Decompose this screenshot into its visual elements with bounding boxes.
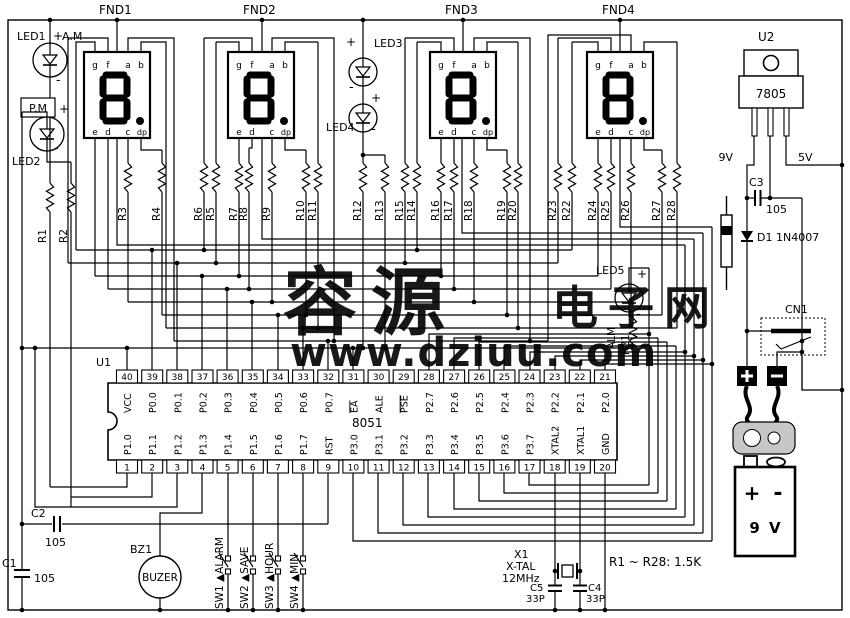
resistor-ref: R16 — [430, 200, 442, 221]
led-led1 — [33, 43, 67, 77]
battery-wire — [774, 386, 779, 425]
junction-dot — [800, 339, 805, 344]
seg-letter: e — [236, 128, 242, 138]
p3-u — [529, 473, 649, 485]
segment-wire — [558, 38, 611, 52]
wire — [786, 136, 842, 165]
seg-letter: d — [451, 128, 457, 138]
resistor-R27 — [658, 163, 665, 192]
seg-letter: e — [595, 128, 601, 138]
seg-letter: a — [628, 61, 634, 71]
resistor-R14 — [413, 163, 420, 192]
resistor-R24 — [594, 163, 601, 192]
pin-label: P0.6 — [299, 392, 310, 413]
segment-wire — [405, 38, 454, 52]
resistor-ref: R17 — [443, 200, 455, 221]
pin-label: ALE — [375, 395, 386, 413]
pin-number: 31 — [348, 373, 359, 383]
pin-label: VCC — [123, 393, 134, 413]
pin-label: P2.0 — [601, 392, 612, 413]
resistor-note: R1 ~ R28: 1.5K — [609, 555, 702, 569]
junction-dot — [332, 339, 337, 344]
pin-label: P0.0 — [148, 392, 159, 413]
resistor-ref: R28 — [666, 200, 678, 221]
wire — [71, 473, 152, 497]
junction-dot — [214, 261, 219, 266]
p3-u — [428, 473, 685, 517]
junction-dot — [603, 608, 608, 613]
switch-contact — [276, 569, 281, 574]
junction-dot — [553, 608, 558, 613]
schematic-canvas: 容源电子网www.dziuu.comFND1gfabedcdpFND2gfabe… — [0, 0, 850, 618]
seg-letter: d — [105, 128, 111, 138]
segment-wire — [285, 42, 318, 52]
led-ref: LED5 — [596, 264, 625, 277]
rail-5v-label: 5V — [798, 151, 813, 164]
pin-number: 14 — [448, 464, 460, 474]
cap-value: 105 — [45, 536, 66, 549]
pin-label: XTAL1 — [576, 426, 587, 455]
diode-package — [721, 196, 732, 290]
display-fnd2: FND2gfabedcdp — [228, 3, 294, 138]
pin-label: P1.2 — [173, 434, 184, 455]
pin-number: 18 — [549, 464, 561, 474]
seg-letter: e — [438, 128, 444, 138]
wire — [802, 198, 842, 390]
watermark-url: www.dziuu.com — [290, 330, 657, 376]
pin-label: P2.7 — [425, 392, 436, 413]
pin-label: P2.6 — [450, 392, 461, 413]
resistor-R17 — [450, 163, 457, 192]
switch-contact — [301, 569, 306, 574]
resistor-R4 — [158, 163, 165, 192]
pin-number: 8 — [300, 464, 306, 474]
jack-contact — [776, 344, 781, 349]
junction-dot — [701, 358, 706, 363]
wire — [160, 473, 202, 556]
junction-dot — [578, 608, 583, 613]
seg-letter: c — [629, 128, 634, 138]
pin-label: P0.2 — [199, 392, 210, 413]
resistor-R11 — [314, 163, 321, 192]
cap-ref: C5 — [530, 583, 543, 594]
junction-dot — [745, 196, 750, 201]
junction-dot — [20, 522, 25, 527]
pin-label: P2.1 — [576, 392, 587, 413]
junction-dot — [175, 261, 180, 266]
seg-letter: g — [236, 61, 242, 71]
junction-dot — [150, 248, 155, 253]
junction-dot — [260, 18, 265, 23]
led-ref: LED2 — [12, 155, 41, 168]
segment-wire — [249, 138, 252, 148]
led-ref: LED4 — [326, 121, 355, 134]
display-ref: FND2 — [243, 3, 276, 17]
pin-label: P1.5 — [249, 434, 260, 455]
resistor-ref: R11 — [307, 200, 319, 221]
pin-label: P1.7 — [299, 434, 310, 455]
junction-dot — [692, 354, 697, 359]
segment-wire — [487, 138, 507, 150]
switch-contact — [301, 556, 306, 561]
junction-dot — [20, 608, 25, 613]
junction-dot — [48, 18, 53, 23]
seg-letter: a — [125, 61, 131, 71]
pin-number: 30 — [373, 373, 385, 383]
resistor-R1 — [46, 183, 53, 212]
pin-number: 27 — [448, 373, 459, 383]
resistor-R28 — [673, 163, 680, 192]
battery-9v — [735, 456, 795, 556]
pin-number: 38 — [172, 373, 184, 383]
resistor-ref: R24 — [587, 200, 599, 221]
pin-number: 7 — [275, 464, 281, 474]
pin-number: 25 — [499, 373, 510, 383]
pin-number: 36 — [222, 373, 234, 383]
pin-number: 22 — [574, 373, 585, 383]
junction-dot — [270, 300, 275, 305]
seg-letter: a — [471, 61, 477, 71]
junction-dot — [115, 18, 120, 23]
led-ref: LED3 — [374, 37, 403, 50]
pin-label: XTAL2 — [551, 426, 562, 455]
junction-dot — [578, 569, 583, 574]
junction-dot — [125, 346, 130, 351]
label: - — [371, 122, 376, 137]
switch-sw1-label: SW1 ▲ALARM — [214, 537, 226, 609]
pin-label: P0.4 — [249, 392, 260, 413]
label: - — [56, 73, 61, 88]
switch-sw4-label: SW4 ▲MIN — [289, 554, 301, 609]
resistor-R16 — [437, 163, 444, 192]
junction-dot — [461, 18, 466, 23]
junction-dot — [840, 163, 845, 168]
resistor-R18 — [470, 163, 477, 192]
p3-u — [378, 473, 703, 533]
cap-ref: C3 — [749, 176, 764, 189]
resistor-ref: R12 — [352, 200, 364, 221]
pin-number: 17 — [524, 464, 535, 474]
resistor-R7 — [235, 163, 242, 192]
resistor-R3 — [124, 163, 131, 192]
junction-dot — [403, 261, 408, 266]
junction-dot — [553, 569, 558, 574]
resistor-ref: R5 — [205, 207, 217, 221]
pin-number: 20 — [599, 464, 611, 474]
resistor-ref: R26 — [620, 200, 632, 221]
pin-label: P3.1 — [375, 434, 386, 455]
resistor-ref: R13 — [374, 200, 386, 221]
junction-dot — [301, 608, 306, 613]
pin-number: 4 — [200, 464, 206, 474]
pin-number: 10 — [348, 464, 360, 474]
junction-dot — [452, 287, 457, 292]
switch-sw3-label: SW3 ▲HOUR — [264, 543, 276, 609]
resistor-R26 — [627, 163, 634, 192]
segment-wire — [117, 138, 685, 245]
resistor-R22 — [568, 163, 575, 192]
pin-number: 9 — [325, 464, 331, 474]
pin-label: P1.4 — [224, 434, 235, 455]
junction-dot — [361, 153, 366, 158]
resistor-ref: R2 — [58, 229, 70, 243]
junction-dot — [316, 326, 321, 331]
label: - — [349, 80, 354, 95]
led-tag: P.M — [29, 102, 47, 115]
cap-ref: C2 — [31, 507, 46, 520]
resistor-R19 — [503, 163, 510, 192]
label: + — [371, 91, 381, 105]
rail-9v-label: 9V — [718, 151, 733, 164]
resistor-ref: R18 — [463, 200, 475, 221]
junction-dot — [351, 346, 356, 351]
display-ref: FND1 — [99, 3, 132, 17]
junction-dot — [276, 313, 281, 318]
pin-number: 29 — [398, 373, 410, 383]
resistor-R15 — [401, 163, 408, 192]
pin-label: P1.0 — [123, 434, 134, 455]
segment-wire — [644, 42, 677, 52]
jack-ref: CN1 — [785, 303, 808, 316]
pin-label: P1.1 — [148, 434, 159, 455]
segment-wire — [204, 38, 252, 52]
pin-number: 40 — [121, 373, 133, 383]
junction-dot — [472, 300, 477, 305]
junction-dot — [683, 350, 688, 355]
seg-letter: dp — [137, 128, 147, 137]
pin-label: P3.4 — [450, 434, 461, 455]
cap-ref: C1 — [2, 557, 17, 570]
ic-part: 8051 — [352, 416, 383, 430]
junction-dot — [618, 18, 623, 23]
display-ref: FND4 — [602, 3, 635, 17]
resistor-ref: R20 — [507, 200, 519, 221]
switch-sw2-label: SW2 ▲SAVE — [239, 547, 251, 609]
dc-jack — [761, 318, 825, 355]
segment-wire — [572, 42, 598, 52]
junction-dot — [505, 313, 510, 318]
seg-letter: g — [92, 61, 98, 71]
resistor-ref: R6 — [193, 207, 205, 221]
wire — [50, 473, 127, 487]
junction-dot — [745, 329, 750, 334]
pin-number: 39 — [146, 373, 158, 383]
cap-value: 33P — [586, 594, 605, 605]
pin-label: P0.3 — [224, 392, 235, 413]
resistor-R25 — [607, 163, 614, 192]
pin-label: P0.7 — [324, 392, 335, 413]
segment-wire — [644, 138, 662, 150]
pin-label: P2.2 — [551, 392, 562, 413]
cap-ref: C4 — [588, 583, 601, 594]
pin-number: 26 — [473, 373, 485, 383]
pin-number: 24 — [524, 373, 536, 383]
pin-number: 37 — [197, 373, 208, 383]
schematic-svg: 容源电子网www.dziuu.comFND1gfabedcdpFND2gfabe… — [0, 0, 850, 618]
seg-letter: dp — [483, 128, 493, 137]
pin-label: EA — [349, 400, 360, 413]
pin-label: GND — [601, 433, 612, 455]
resistor-ref: R25 — [600, 200, 612, 221]
seg-letter: c — [472, 128, 477, 138]
segment-wire — [487, 42, 518, 52]
seg-letter: b — [484, 61, 490, 71]
switch-contact — [251, 569, 256, 574]
buzzer-ref: BZ1 — [130, 543, 152, 556]
diode-symbol — [741, 231, 753, 241]
pin-number: 15 — [473, 464, 484, 474]
p3-u — [479, 473, 667, 501]
seg-letter: b — [138, 61, 144, 71]
junction-dot — [251, 608, 256, 613]
buzzer-label: BUZER — [142, 572, 178, 584]
junction-dot — [202, 248, 207, 253]
junction-dot — [237, 274, 242, 279]
resistor-ref: R23 — [547, 200, 559, 221]
label: + — [637, 267, 647, 281]
regulator-ref: U2 — [758, 30, 774, 44]
junction-dot — [304, 313, 309, 318]
battery-plus: + — [744, 481, 761, 505]
resistor-ref: R1 — [37, 229, 49, 243]
resistor-ref: R14 — [406, 200, 418, 221]
wire — [777, 352, 802, 366]
junction-dot — [247, 287, 252, 292]
seg-letter: d — [608, 128, 614, 138]
p3-u — [504, 473, 658, 493]
segment-wire — [285, 138, 306, 150]
pin-number: 21 — [599, 373, 610, 383]
segment-wire — [417, 42, 441, 52]
display-ref: FND3 — [445, 3, 478, 17]
junction-dot — [647, 332, 652, 337]
pin-number: 28 — [423, 373, 435, 383]
seg-letter: c — [126, 128, 131, 138]
jack-contact — [781, 337, 811, 349]
pin-number: 5 — [225, 464, 231, 474]
pin-number: 35 — [247, 373, 258, 383]
pin-label: P3.0 — [349, 434, 360, 455]
battery-clip — [733, 422, 795, 454]
battery-wire — [745, 386, 750, 425]
junction-dot — [840, 388, 845, 393]
resistor-ref: R27 — [651, 200, 663, 221]
seg-letter: b — [641, 61, 647, 71]
battery-label: 9 V — [749, 519, 782, 537]
pin-number: 13 — [423, 464, 434, 474]
resistor-ref: R4 — [151, 207, 163, 221]
pin-number: 11 — [373, 464, 384, 474]
switch-contact — [251, 556, 256, 561]
pin-label: P0.1 — [173, 392, 184, 413]
pin-label: P3.2 — [400, 434, 411, 455]
switch-contact — [226, 556, 231, 561]
pin-label: PSE — [400, 395, 411, 413]
junction-dot — [710, 362, 715, 367]
pin-number: 1 — [124, 464, 130, 474]
junction-dot — [326, 339, 331, 344]
segment-wire — [262, 138, 694, 239]
junction-dot — [383, 346, 388, 351]
pin-label: P1.6 — [274, 434, 285, 455]
seg-letter: g — [438, 61, 444, 71]
segment-wire — [216, 42, 239, 52]
label: + — [59, 102, 69, 116]
crystal — [562, 565, 573, 577]
mcu-u1: U1805140VCC39P0.038P0.137P0.236P0.335P0.… — [96, 356, 617, 474]
pin-number: 34 — [272, 373, 284, 383]
battery-minus: - — [773, 481, 782, 506]
junction-dot — [528, 339, 533, 344]
junction-dot — [768, 196, 773, 201]
p3-u — [454, 473, 676, 509]
switch-contact — [276, 556, 281, 561]
pin-number: 32 — [323, 373, 334, 383]
pin-label: P2.3 — [526, 392, 537, 413]
pin-number: 33 — [297, 373, 308, 383]
pin-number: 19 — [574, 464, 586, 474]
junction-dot — [250, 300, 255, 305]
ic-ref: U1 — [96, 356, 111, 369]
pin-label: P0.5 — [274, 392, 285, 413]
junction-dot — [361, 18, 366, 23]
seg-letter: a — [269, 61, 275, 71]
resistor-R9 — [268, 163, 275, 192]
led-tag: A.M — [62, 30, 82, 43]
pin-label: P1.3 — [199, 434, 210, 455]
led-ref: LED1 — [17, 30, 46, 43]
pin-number: 12 — [398, 464, 409, 474]
seg-letter: b — [282, 61, 288, 71]
pin-label: RST — [324, 436, 335, 455]
pin-label: P3.3 — [425, 434, 436, 455]
resistor-R8 — [245, 163, 252, 192]
regulator-u2: U27805 — [739, 30, 803, 136]
label: + — [346, 35, 356, 49]
resistor-R10 — [302, 163, 309, 192]
junction-dot — [439, 274, 444, 279]
seg-letter: e — [92, 128, 98, 138]
seg-letter: c — [270, 128, 275, 138]
led-led2 — [30, 117, 64, 151]
diode-label: D1 1N4007 — [757, 231, 819, 244]
pin-label: P2.5 — [475, 392, 486, 413]
resistor-ref: R22 — [561, 200, 573, 221]
junction-dot — [226, 608, 231, 613]
segment-wire — [141, 138, 162, 150]
seg-letter: g — [595, 61, 601, 71]
resistor-ref: R8 — [238, 207, 250, 221]
junction-dot — [800, 350, 805, 355]
resistor-R6 — [200, 163, 207, 192]
pin-number: 3 — [174, 464, 180, 474]
resistor-R12 — [359, 163, 366, 192]
pin-number: 16 — [499, 464, 511, 474]
pin-number: 23 — [549, 373, 560, 383]
pin-label: P2.4 — [500, 392, 511, 413]
seg-letter: dp — [640, 128, 650, 137]
resistor-R20 — [514, 163, 521, 192]
junction-dot — [200, 274, 205, 279]
resistor-R5 — [212, 163, 219, 192]
junction-dot — [516, 326, 521, 331]
resistor-ref: R10 — [295, 200, 307, 221]
resistor-R23 — [554, 163, 561, 192]
resistor-ref: R3 — [117, 207, 129, 221]
cap-value: 105 — [34, 572, 55, 585]
pin-label: P3.7 — [526, 434, 537, 455]
pin-label: P3.5 — [475, 434, 486, 455]
